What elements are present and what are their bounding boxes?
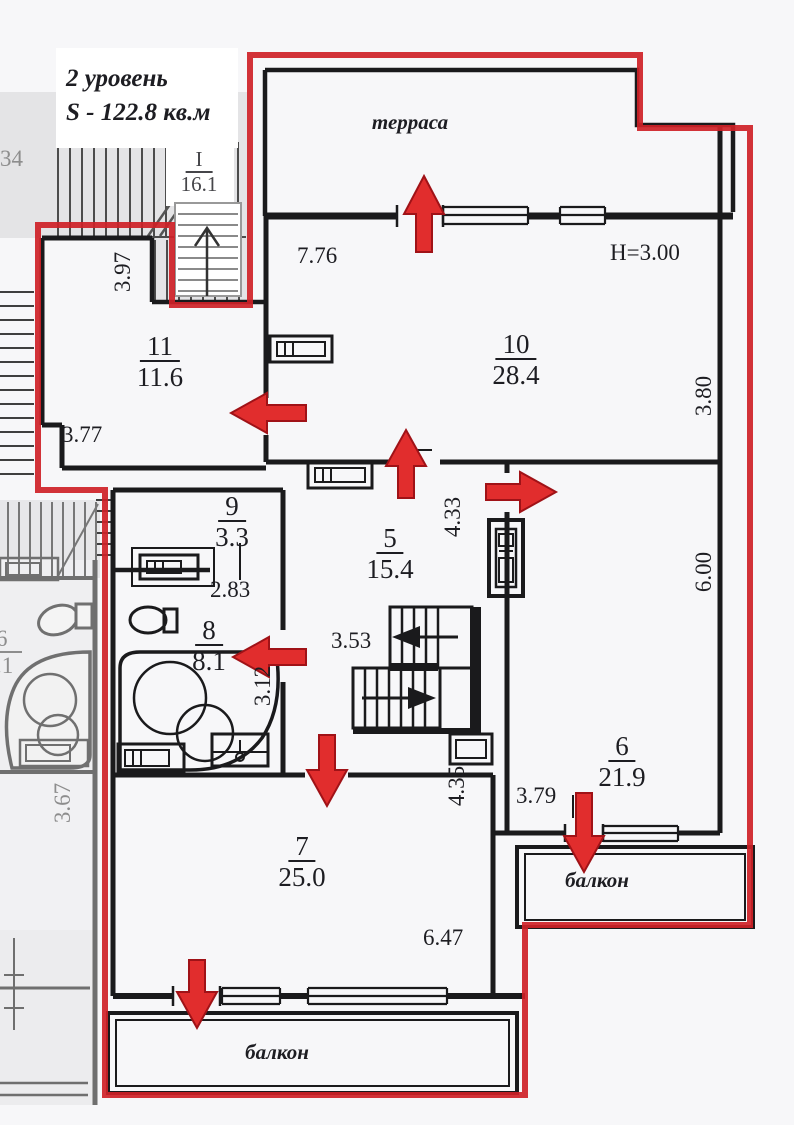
floor-plan-scan: 2 уровень S - 122.8 кв.м терраса балкон … bbox=[0, 0, 794, 1125]
terrace-label: терраса bbox=[372, 110, 448, 135]
internal-stairs bbox=[353, 607, 481, 734]
door-arrow-room11-left bbox=[231, 393, 306, 433]
stairwell-label: I 16.1 bbox=[181, 148, 218, 196]
room-8-label: 88.1 bbox=[192, 616, 226, 676]
radiator-room7 bbox=[450, 734, 492, 764]
toilet bbox=[130, 607, 177, 633]
neighbor-room-label: 6 .1 bbox=[0, 626, 22, 679]
window-hatch-left bbox=[0, 292, 34, 474]
room-11-label: 1111.6 bbox=[137, 332, 183, 392]
window-room7-1 bbox=[222, 988, 280, 1004]
title-block: 2 уровень S - 122.8 кв.м bbox=[66, 62, 210, 130]
door-arrow-room10-up bbox=[386, 430, 426, 498]
dim-room11-depth: 3.97 bbox=[110, 252, 136, 292]
dim-room11-width: 3.77 bbox=[62, 422, 102, 448]
dim-room7-depth: 4.35 bbox=[444, 766, 470, 806]
dim-balcony-right-width: 3.79 bbox=[516, 783, 556, 809]
radiator-hall bbox=[308, 462, 372, 488]
radiator-room8 bbox=[118, 744, 184, 772]
balcony-bottom-label: балкон bbox=[245, 1040, 309, 1065]
dim-room10-depth: 3.80 bbox=[691, 376, 717, 416]
room-9-label: 93.3 bbox=[215, 492, 249, 552]
door-arrow-terrace-up bbox=[404, 176, 444, 252]
dim-room8-depth: 3.12 bbox=[250, 666, 276, 706]
dim-room7-width: 6.47 bbox=[423, 925, 463, 951]
door-arrow-room6-right bbox=[486, 472, 556, 512]
room-7-label: 725.0 bbox=[278, 832, 325, 892]
window-room6 bbox=[603, 826, 678, 841]
room-6-label: 621.9 bbox=[598, 732, 645, 792]
window-terrace-2 bbox=[560, 207, 605, 224]
title-level: 2 уровень bbox=[66, 62, 210, 96]
balcony-right-rail bbox=[517, 847, 753, 927]
ceiling-height-label: H=3.00 bbox=[610, 240, 680, 266]
neighbor-cut-number: 34 bbox=[0, 146, 23, 172]
window-terrace-1 bbox=[443, 207, 528, 224]
dim-room10-width: 7.76 bbox=[297, 243, 337, 269]
radiator-room9 bbox=[132, 548, 214, 586]
door-arrow-balcony-bottom-down bbox=[177, 960, 217, 1028]
title-area: S - 122.8 кв.м bbox=[66, 96, 210, 130]
door-arrow-balcony-right-down bbox=[564, 793, 604, 872]
balcony-right-label: балкон bbox=[565, 868, 629, 893]
dim-hall-depth: 4.33 bbox=[440, 497, 466, 537]
attic-stair-box bbox=[175, 203, 241, 296]
balcony-bottom-rail bbox=[108, 1013, 517, 1093]
dim-neighbor-depth: 3.67 bbox=[50, 783, 76, 823]
window-room7-2 bbox=[308, 988, 447, 1004]
dim-room8-width: 2.83 bbox=[210, 577, 250, 603]
dim-hall-width: 3.53 bbox=[331, 628, 371, 654]
radiator-room10 bbox=[270, 336, 332, 362]
door-arrow-room7-down bbox=[307, 735, 347, 806]
room-10-label: 1028.4 bbox=[492, 330, 539, 390]
dim-room6-depth: 6.00 bbox=[691, 552, 717, 592]
room-5-label: 515.4 bbox=[366, 524, 413, 584]
